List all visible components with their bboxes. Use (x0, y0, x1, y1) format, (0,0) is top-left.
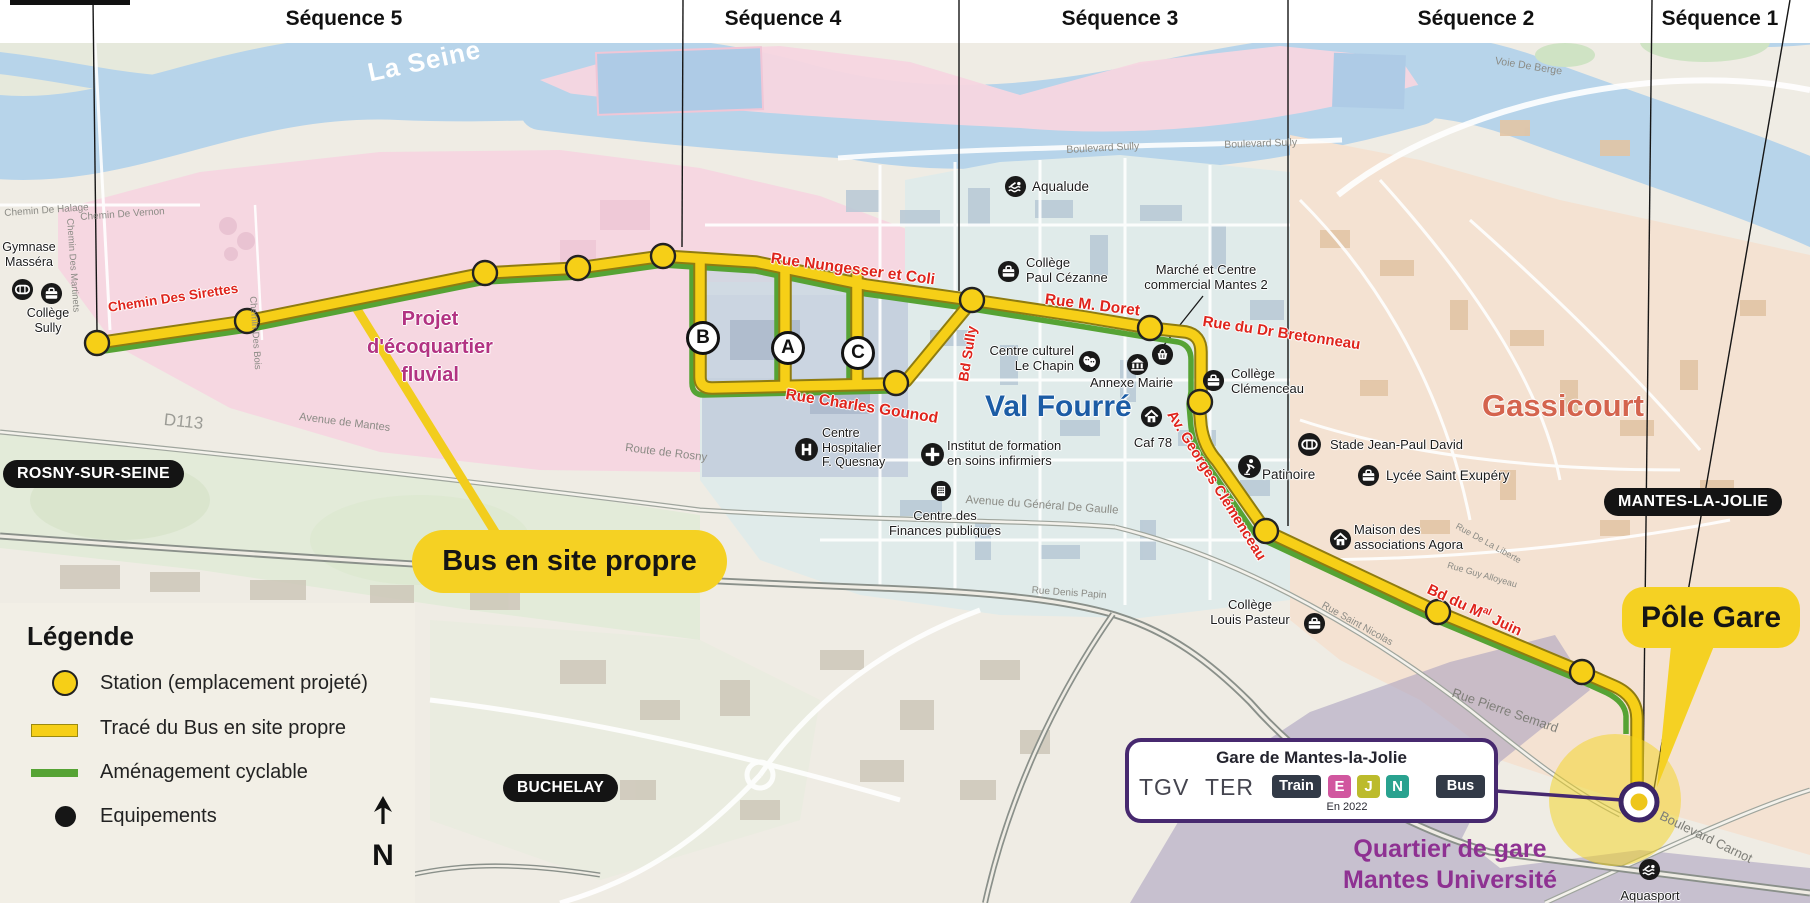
house-icon (1140, 405, 1163, 428)
gare-note: En 2022 (1297, 801, 1397, 813)
north-arrow-icon (370, 796, 396, 838)
skater-icon (1237, 454, 1262, 479)
sequence-5-label: Séquence 5 (244, 7, 444, 31)
poi-patinoire: Patinoire (1262, 467, 1315, 483)
stop-letter-a: A (771, 331, 805, 365)
legend-trace-label: Tracé du Bus en site propre (100, 717, 346, 740)
north-letter: N (363, 843, 403, 869)
gassicourt-label: Gassicourt (1482, 388, 1644, 424)
station-swatch (52, 670, 78, 696)
gare-title: Gare de Mantes-la-Jolie (1129, 748, 1494, 768)
bus-route-swatch (31, 724, 78, 737)
ter-label: TER (1205, 774, 1254, 801)
sequence-4-label: Séquence 4 (683, 7, 883, 31)
line-j-badge: J (1357, 775, 1380, 798)
sequence-3-label: Séquence 3 (1020, 7, 1220, 31)
poi-maison-agora: Maison desassociations Agora (1354, 522, 1463, 552)
poi-centre-finances: Centre desFinances publiques (860, 508, 1030, 538)
sequence-2-label: Séquence 2 (1376, 7, 1576, 31)
stadium-icon (1297, 432, 1322, 457)
train-badge: Train (1272, 775, 1321, 798)
legend-panel: Légende Station (emplacement projeté) Tr… (0, 603, 415, 903)
pole-gare-callout: Pôle Gare (1622, 587, 1800, 648)
theater-masks-icon (1078, 350, 1101, 373)
north-compass: N (363, 796, 403, 869)
bus-site-propre-callout: Bus en site propre (412, 530, 727, 593)
market-basket-icon (1151, 343, 1174, 366)
school-icon (1303, 612, 1326, 635)
legend-station-label: Station (emplacement projeté) (100, 672, 368, 695)
val-fourre-label: Val Fourré (985, 390, 1132, 424)
school-icon (1357, 464, 1380, 487)
swimmer-icon (1004, 175, 1027, 198)
street-bd-sully-east: Boulevard Sully (1224, 136, 1297, 151)
poi-caf-78: Caf 78 (1131, 435, 1175, 450)
swimmer-icon (1638, 858, 1661, 881)
ecoquartier-label: Projet d'écoquartier fluvial (330, 305, 530, 389)
house-icon (1329, 528, 1352, 551)
city-pill-mantes: MANTES-LA-JOLIE (1604, 488, 1782, 516)
school-icon (1202, 369, 1225, 392)
rer-e-badge: E (1328, 775, 1351, 798)
sequence-1-label: Séquence 1 (1620, 7, 1810, 31)
street-d113: D113 (163, 410, 204, 434)
map-canvas: Séquence 5 Séquence 4 Séquence 3 Séquenc… (0, 0, 1810, 903)
city-pill-rosny: ROSNY-SUR-SEINE (3, 460, 184, 488)
hospital-icon (794, 437, 819, 462)
quartier-gare-label: Quartier de gare Mantes Université (1265, 834, 1635, 896)
gare-info-box: Gare de Mantes-la-Jolie TGV TER Train E … (1125, 738, 1498, 823)
school-icon (997, 260, 1020, 283)
poi-marche-mantes2: Marché et Centrecommercial Mantes 2 (1106, 262, 1306, 292)
poi-college-cezanne: CollègePaul Cézanne (1026, 255, 1108, 285)
stop-letter-b: B (686, 321, 720, 355)
stop-letter-c: C (841, 336, 875, 370)
poi-institut-formation: Institut de formationen soins infirmiers (947, 438, 1061, 468)
poi-aquasport: Aquasport (1615, 888, 1685, 903)
poi-lycee-saint-exupery: Lycée Saint Exupéry (1386, 468, 1509, 484)
poi-centre-culturel-chapin: Centre culturelLe Chapin (950, 343, 1074, 373)
line-n-badge: N (1386, 775, 1409, 798)
cycle-lane-swatch (31, 769, 78, 777)
poi-stade-jean-paul-david: Stade Jean-Paul David (1330, 437, 1463, 452)
legend-title: Légende (27, 621, 134, 652)
legend-cyclable-label: Aménagement cyclable (100, 761, 308, 784)
medical-cross-icon (920, 442, 945, 467)
poi-college-clemenceau: CollègeClémenceau (1231, 366, 1304, 396)
legend-equipements-label: Equipements (100, 805, 217, 828)
office-building-icon (930, 480, 952, 502)
poi-gymnase-massera: GymnaseMasséra (0, 240, 58, 269)
tgv-label: TGV (1139, 774, 1189, 801)
city-pill-buchelay: BUCHELAY (503, 774, 618, 802)
top-left-crop-fragment (10, 0, 130, 5)
school-icon (40, 282, 63, 305)
bus-badge: Bus (1436, 775, 1485, 798)
stadium-icon (11, 278, 34, 301)
poi-annexe-mairie: Annexe Mairie (1090, 375, 1173, 390)
poi-aqualude: Aqualude (1032, 179, 1089, 195)
town-hall-icon (1126, 353, 1149, 376)
poi-college-pasteur: CollègeLouis Pasteur (1195, 597, 1305, 627)
poi-college-sully: CollègeSully (13, 306, 83, 335)
equipment-swatch (55, 806, 76, 827)
poi-centre-hospitalier: CentreHospitalierF. Quesnay (822, 426, 885, 470)
